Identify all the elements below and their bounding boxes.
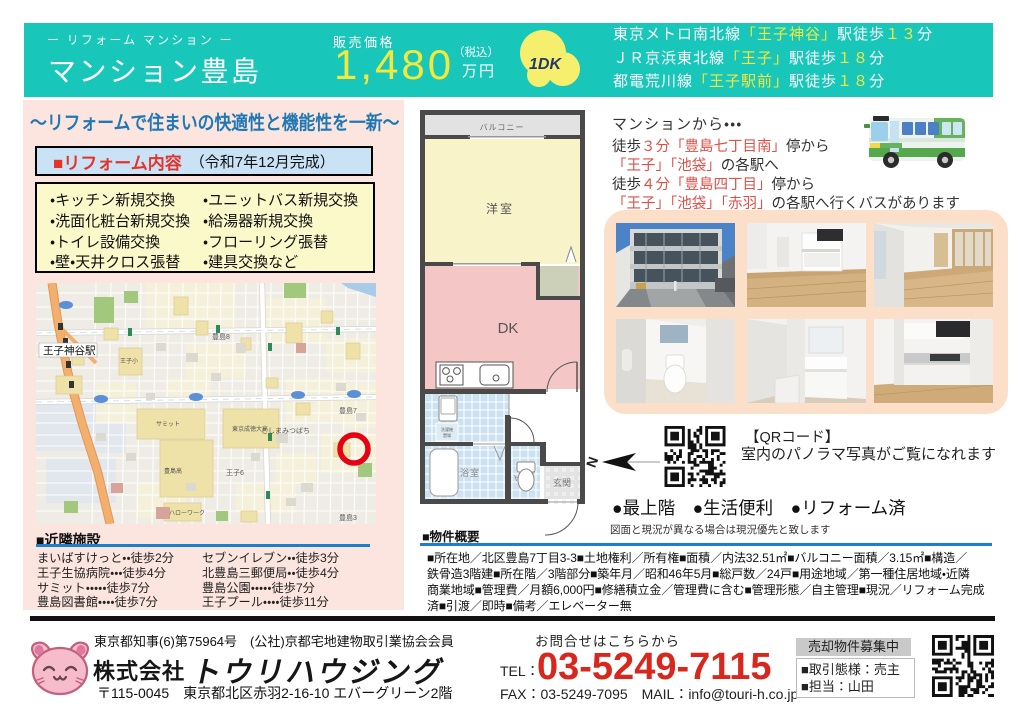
svg-text:浴室: 浴室 (460, 467, 480, 478)
svg-text:バルコニー: バルコニー (480, 123, 525, 132)
svg-text:豊島3: 豊島3 (339, 513, 357, 522)
svg-text:玄関: 玄関 (553, 477, 571, 488)
svg-text:豊島7: 豊島7 (339, 406, 357, 415)
svg-text:N: N (583, 455, 601, 470)
svg-text:洋室: 洋室 (486, 201, 514, 216)
svg-text:東京成徳大高: 東京成徳大高 (232, 425, 268, 433)
svg-text:1DK: 1DK (529, 56, 562, 73)
svg-text:DK: DK (498, 320, 519, 337)
svg-text:王子神谷駅: 王子神谷駅 (43, 344, 96, 357)
svg-text:洗濯機: 洗濯機 (441, 426, 453, 432)
svg-text:王子6: 王子6 (226, 469, 244, 477)
svg-text:豊島8: 豊島8 (212, 332, 230, 341)
svg-text:王子小: 王子小 (120, 357, 138, 365)
svg-text:ハローワーク: ハローワーク (169, 510, 205, 517)
svg-text:としまみつばち: としまみつばち (261, 426, 310, 435)
svg-text:サミット: サミット (156, 421, 180, 428)
svg-text:置場: 置場 (443, 432, 451, 438)
svg-text:豊島高: 豊島高 (164, 467, 182, 475)
